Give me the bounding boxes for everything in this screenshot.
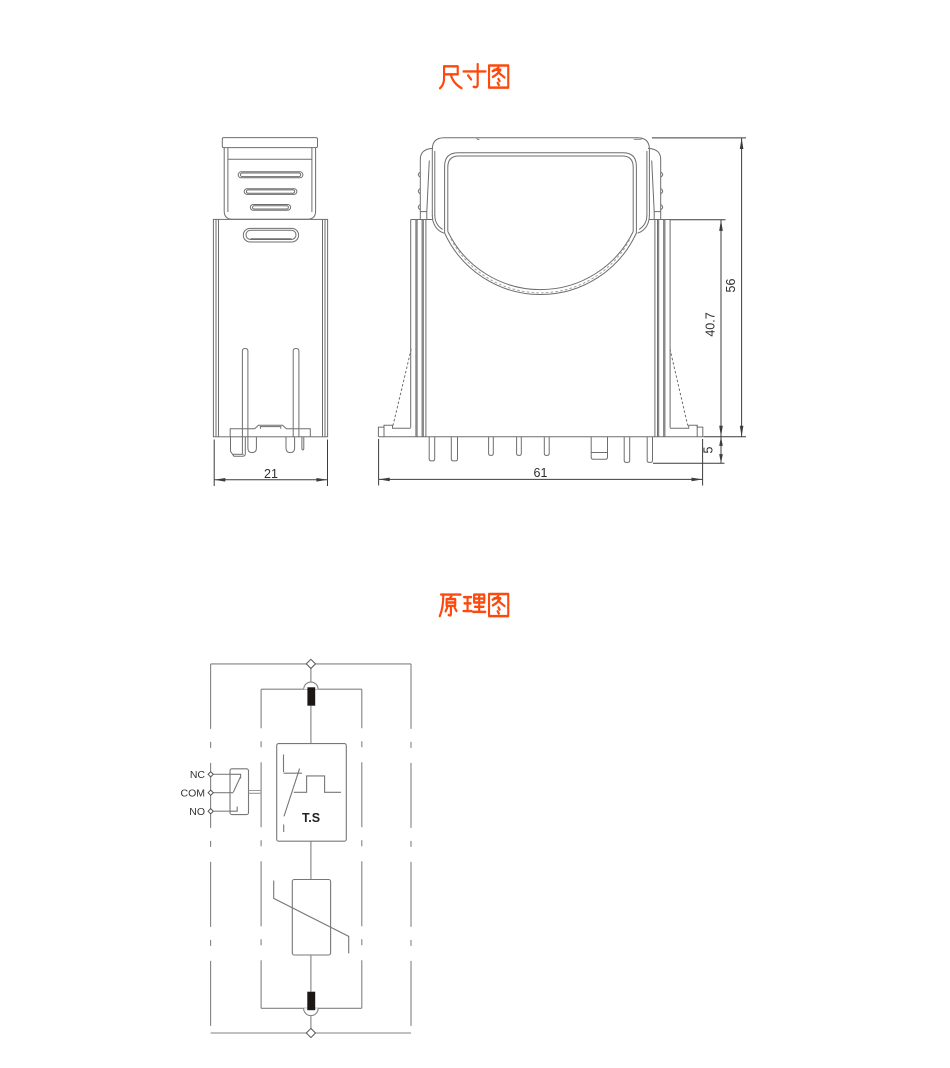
svg-text:61: 61 [534, 466, 548, 480]
svg-text:NO: NO [189, 806, 205, 818]
svg-text:T.S: T.S [302, 811, 320, 825]
svg-text:5: 5 [702, 446, 716, 453]
svg-text:40.7: 40.7 [704, 312, 718, 336]
svg-text:21: 21 [264, 467, 278, 481]
svg-text:NC: NC [190, 769, 206, 781]
svg-text:COM: COM [181, 787, 206, 799]
svg-text:56: 56 [724, 279, 738, 293]
